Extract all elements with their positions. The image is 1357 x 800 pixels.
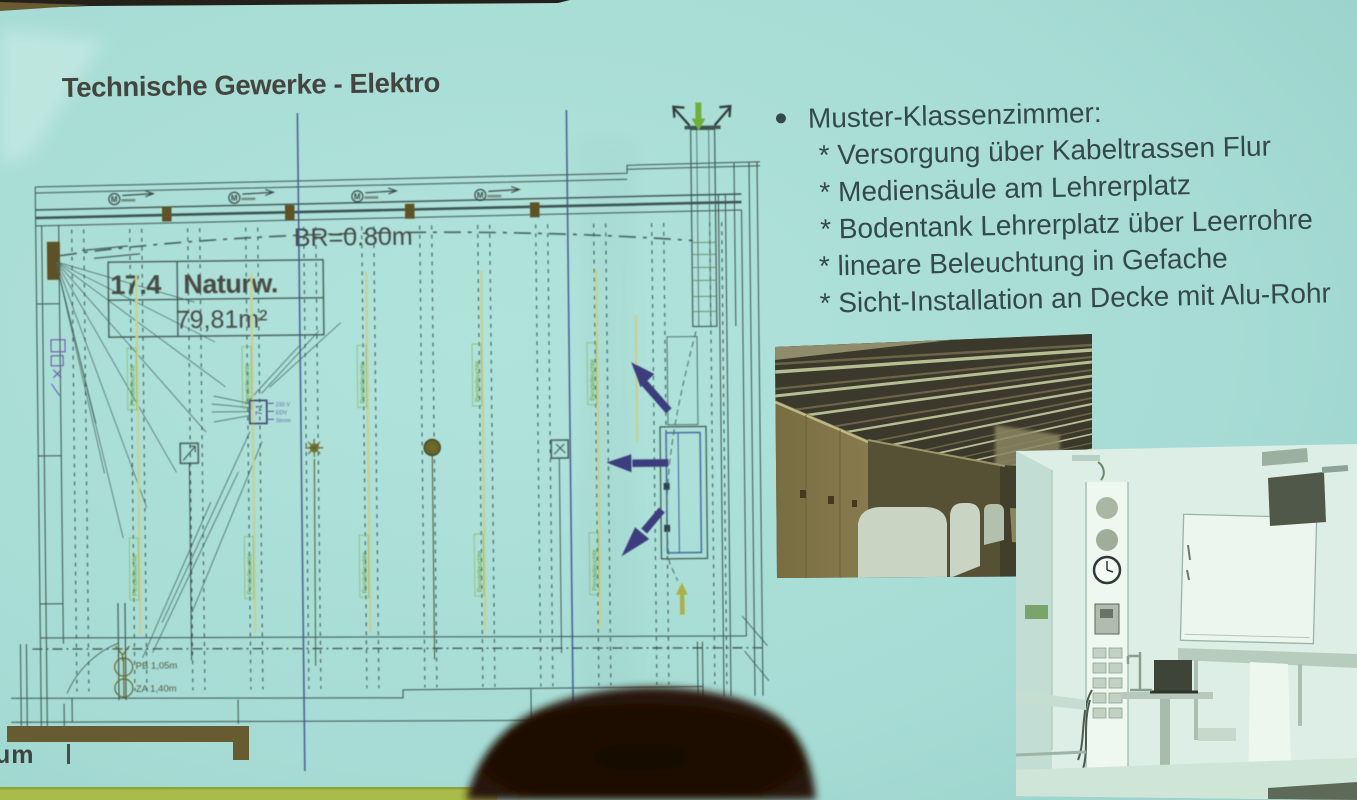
svg-text:Pendelleuchte: Pendelleuchte — [131, 554, 138, 596]
svg-text:Pendelleuchte: Pendelleuchte — [246, 553, 253, 595]
svg-text:Pendelleuchte: Pendelleuchte — [244, 363, 251, 405]
svg-text:Pendelleuchte: Pendelleuchte — [476, 550, 483, 592]
svg-text:Naturw.: Naturw. — [183, 268, 278, 299]
svg-text:Pendelleuchte: Pendelleuchte — [591, 549, 598, 591]
svg-text:Pendelleuchte: Pendelleuchte — [129, 364, 136, 406]
svg-text:Pendelleuchte: Pendelleuchte — [359, 362, 366, 404]
svg-text:M: M — [231, 194, 238, 203]
svg-text:um: um — [0, 741, 35, 769]
svg-text:230 V: 230 V — [276, 402, 291, 408]
svg-text:M: M — [111, 195, 118, 204]
svg-text:Strom: Strom — [276, 418, 291, 424]
svg-text:Muster-Klassenzimmer:: Muster-Klassenzimmer: — [808, 97, 1102, 134]
svg-text:BR=0.80m: BR=0.80m — [294, 223, 413, 252]
svg-text:M: M — [354, 192, 361, 201]
svg-text:EDV: EDV — [276, 410, 288, 416]
svg-text:Technische Gewerke - Elektro: Technische Gewerke - Elektro — [62, 67, 440, 103]
svg-text:Pendelleuchte: Pendelleuchte — [474, 360, 481, 402]
svg-text:7.1: 7.1 — [255, 404, 264, 416]
svg-text:Pendelleuchte: Pendelleuchte — [361, 552, 368, 594]
svg-text:ZA 1,40m: ZA 1,40m — [136, 683, 177, 694]
svg-text:PB 1,05m: PB 1,05m — [136, 660, 178, 671]
svg-text:M: M — [477, 191, 484, 200]
svg-text:Pendelleuchte: Pendelleuchte — [589, 359, 596, 401]
